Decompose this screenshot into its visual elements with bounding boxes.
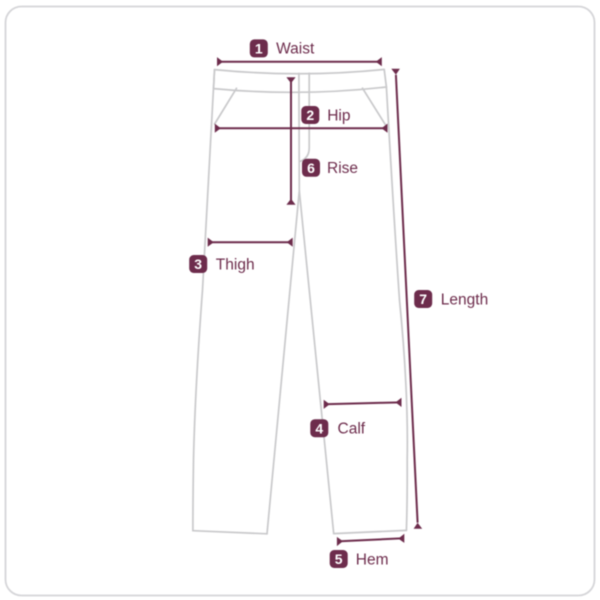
svg-text:6: 6 — [307, 160, 315, 176]
svg-text:Hip: Hip — [327, 107, 350, 124]
svg-text:Rise: Rise — [327, 160, 358, 177]
svg-text:3: 3 — [194, 256, 202, 272]
svg-text:4: 4 — [315, 420, 323, 436]
svg-text:Thigh: Thigh — [216, 256, 255, 273]
svg-text:1: 1 — [255, 41, 263, 57]
svg-text:7: 7 — [419, 291, 427, 307]
svg-text:5: 5 — [335, 551, 343, 567]
svg-text:2: 2 — [306, 107, 314, 123]
svg-text:Calf: Calf — [338, 421, 366, 438]
svg-text:Hem: Hem — [356, 551, 389, 568]
svg-text:Waist: Waist — [276, 41, 315, 58]
svg-text:Length: Length — [441, 291, 488, 308]
